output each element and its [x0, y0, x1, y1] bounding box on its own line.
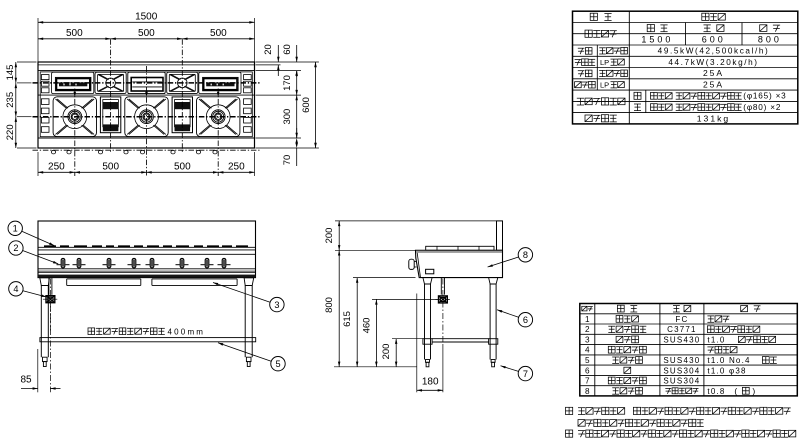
- svg-text:4: 4: [585, 346, 590, 355]
- svg-text:3: 3: [585, 335, 590, 344]
- svg-text:800: 800: [324, 297, 335, 313]
- svg-text:235: 235: [5, 92, 16, 108]
- svg-text:3: 3: [274, 300, 279, 310]
- svg-text:400mm: 400mm: [168, 327, 206, 336]
- svg-text:SUS430: SUS430: [663, 356, 700, 365]
- svg-text:200: 200: [324, 228, 335, 244]
- svg-text:170: 170: [282, 75, 293, 91]
- svg-text:6: 6: [585, 366, 590, 375]
- svg-text:5: 5: [585, 356, 590, 365]
- svg-text:85: 85: [20, 375, 32, 386]
- svg-text:145: 145: [5, 65, 16, 81]
- svg-text:7: 7: [523, 369, 528, 379]
- svg-text:FC: FC: [675, 315, 688, 324]
- svg-text:60: 60: [282, 44, 293, 55]
- svg-text:500: 500: [174, 161, 191, 172]
- svg-text:t1.0: t1.0: [707, 335, 725, 344]
- svg-text:2: 2: [13, 243, 18, 253]
- svg-text:SUS304: SUS304: [663, 366, 700, 375]
- svg-text:1500: 1500: [135, 11, 158, 22]
- svg-text:500: 500: [210, 28, 227, 39]
- svg-text:LP: LP: [600, 81, 609, 90]
- svg-text:4: 4: [13, 284, 18, 294]
- svg-text:500: 500: [138, 28, 155, 39]
- svg-text:500: 500: [66, 28, 83, 39]
- svg-text:250: 250: [48, 161, 65, 172]
- svg-text:t1.0 No.4: t1.0 No.4: [707, 356, 750, 365]
- svg-text:25A: 25A: [703, 68, 724, 78]
- svg-text:220: 220: [5, 124, 16, 140]
- svg-text:20: 20: [263, 44, 274, 55]
- svg-text:C3771: C3771: [667, 325, 697, 334]
- svg-text:(φ80) ×2: (φ80) ×2: [743, 103, 781, 112]
- svg-text:2: 2: [585, 325, 590, 334]
- svg-text:200: 200: [381, 344, 392, 360]
- svg-text:6: 6: [523, 315, 528, 325]
- svg-text:t0.8: t0.8: [707, 387, 725, 396]
- svg-text:(φ165) ×3: (φ165) ×3: [743, 92, 786, 101]
- svg-text:44.7kW(3.20kg/h): 44.7kW(3.20kg/h): [668, 58, 758, 67]
- svg-text:250: 250: [228, 161, 245, 172]
- svg-text:460: 460: [361, 318, 372, 334]
- svg-text:180: 180: [422, 376, 439, 387]
- svg-text:8: 8: [585, 387, 590, 396]
- svg-text:600: 600: [301, 97, 312, 113]
- svg-text:600: 600: [702, 35, 726, 45]
- svg-text:300: 300: [282, 109, 293, 125]
- svg-text:5: 5: [275, 359, 280, 369]
- svg-text:70: 70: [282, 155, 293, 166]
- svg-text:SUS430: SUS430: [663, 335, 700, 344]
- svg-text:1: 1: [585, 315, 590, 324]
- svg-text:500: 500: [102, 161, 119, 172]
- svg-text:SUS304: SUS304: [663, 377, 700, 386]
- svg-text:49.5kW(42,500kcal/h): 49.5kW(42,500kcal/h): [658, 47, 770, 56]
- svg-text:LP: LP: [600, 58, 609, 67]
- svg-text:25A: 25A: [703, 80, 724, 90]
- svg-text:t1.0 φ38: t1.0 φ38: [707, 366, 746, 375]
- svg-text:8: 8: [523, 250, 528, 260]
- svg-text:7: 7: [585, 377, 590, 386]
- svg-text:1: 1: [13, 224, 18, 234]
- svg-text:1500: 1500: [641, 35, 673, 45]
- svg-text:131kg: 131kg: [697, 114, 730, 124]
- svg-text:615: 615: [342, 311, 353, 327]
- svg-text:(: (: [734, 386, 737, 396]
- svg-text:800: 800: [758, 35, 782, 45]
- svg-text:): ): [752, 386, 755, 396]
